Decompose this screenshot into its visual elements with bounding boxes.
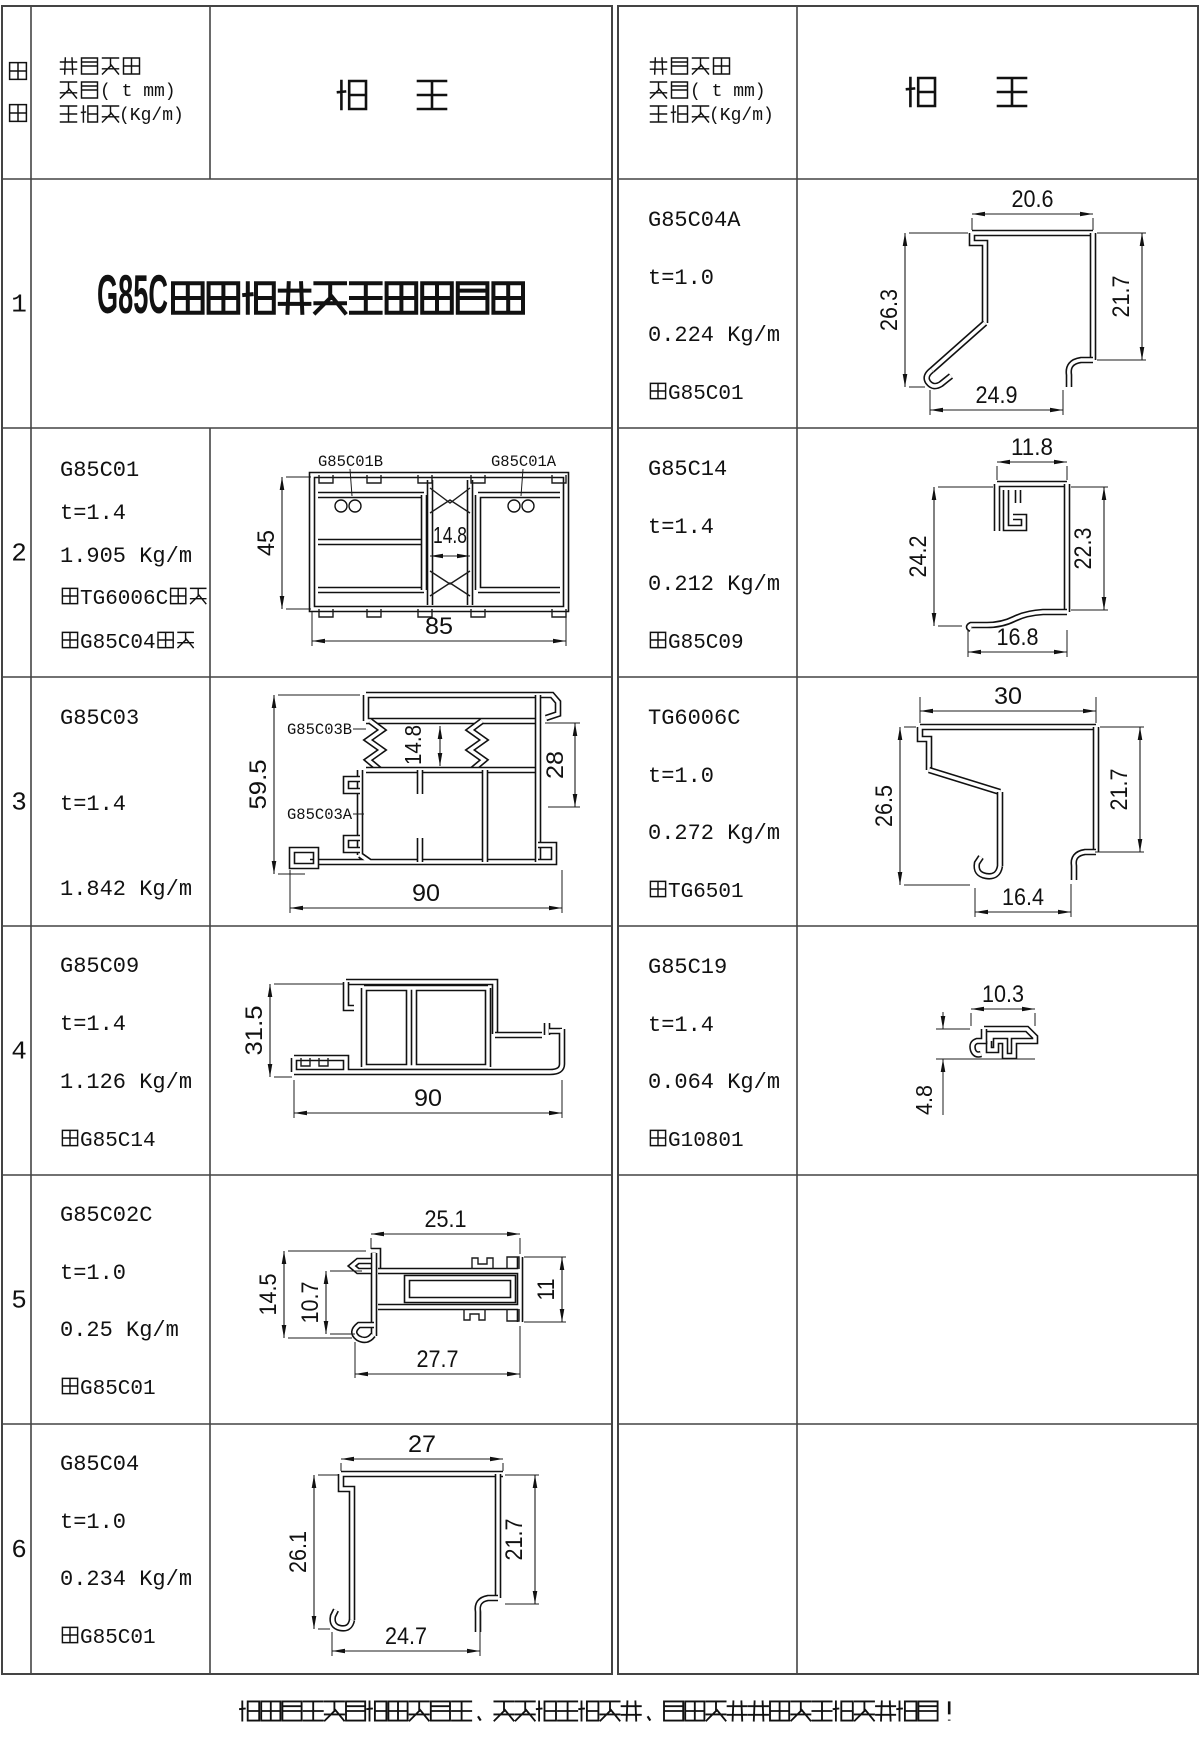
svg-text:1: 1 (11, 290, 27, 320)
svg-text:6: 6 (11, 1535, 27, 1565)
svg-text:0.224 Kg/m: 0.224 Kg/m (648, 323, 780, 348)
svg-text:t=1.0: t=1.0 (648, 266, 714, 291)
svg-text:(Kg/m): (Kg/m) (709, 106, 774, 126)
svg-text:t=1.0: t=1.0 (60, 1510, 126, 1535)
svg-text:G85C09: G85C09 (668, 632, 744, 655)
svg-text:20.6: 20.6 (1012, 186, 1054, 213)
svg-text:14.5: 14.5 (255, 1274, 282, 1316)
svg-text:4: 4 (11, 1037, 27, 1067)
svg-text:G10801: G10801 (668, 1130, 744, 1153)
svg-text:4.8: 4.8 (911, 1085, 937, 1115)
svg-text:10.7: 10.7 (297, 1282, 324, 1324)
svg-text:25.1: 25.1 (425, 1206, 467, 1233)
svg-text:14.8: 14.8 (400, 725, 426, 765)
svg-text:45: 45 (253, 530, 280, 556)
svg-text:0.064 Kg/m: 0.064 Kg/m (648, 1070, 780, 1095)
svg-text:2: 2 (11, 539, 27, 569)
svg-text:G85C02C: G85C02C (60, 1203, 152, 1228)
svg-text:G85C03A: G85C03A (287, 806, 353, 824)
svg-text:16.8: 16.8 (997, 624, 1039, 651)
svg-text:G85C01B: G85C01B (318, 453, 383, 471)
svg-text:( t mm): ( t mm) (100, 82, 176, 102)
svg-text:26.3: 26.3 (876, 289, 903, 331)
svg-text:26.1: 26.1 (285, 1531, 312, 1573)
svg-text:0.25 Kg/m: 0.25 Kg/m (60, 1318, 179, 1343)
svg-text:1.126 Kg/m: 1.126 Kg/m (60, 1070, 192, 1095)
svg-text:t=1.4: t=1.4 (648, 515, 714, 540)
svg-text:10.3: 10.3 (982, 981, 1024, 1008)
svg-text:t=1.4: t=1.4 (60, 1012, 126, 1037)
svg-text:G85C14: G85C14 (80, 1130, 156, 1153)
svg-text:t=1.0: t=1.0 (60, 1261, 126, 1286)
svg-text:3: 3 (11, 788, 27, 818)
svg-text:1.842 Kg/m: 1.842 Kg/m (60, 877, 192, 902)
svg-text:1.905 Kg/m: 1.905 Kg/m (60, 544, 192, 569)
svg-text:G85C19: G85C19 (648, 955, 727, 980)
svg-text:0.272 Kg/m: 0.272 Kg/m (648, 821, 780, 846)
svg-text:21.7: 21.7 (1108, 276, 1135, 318)
svg-text:G85C03B: G85C03B (287, 721, 352, 739)
svg-text:59.5: 59.5 (245, 760, 272, 810)
svg-text:G85C14: G85C14 (648, 457, 727, 482)
svg-text:21.7: 21.7 (1106, 769, 1133, 811)
svg-text:11.8: 11.8 (1011, 434, 1053, 461)
svg-text:5: 5 (11, 1286, 27, 1316)
svg-text:90: 90 (412, 880, 440, 907)
svg-text:t=1.4: t=1.4 (60, 501, 126, 526)
svg-text:G85C: G85C (97, 263, 168, 325)
svg-text:t=1.0: t=1.0 (648, 764, 714, 789)
svg-text:G85C01: G85C01 (668, 383, 744, 406)
svg-text:14.8: 14.8 (433, 522, 467, 548)
svg-text:G85C01A: G85C01A (491, 453, 557, 471)
svg-text:G85C01: G85C01 (80, 1378, 156, 1401)
svg-text:22.3: 22.3 (1070, 528, 1097, 570)
svg-text:16.4: 16.4 (1002, 884, 1044, 911)
svg-text:(Kg/m): (Kg/m) (119, 106, 184, 126)
svg-text:26.5: 26.5 (871, 785, 898, 827)
svg-text:TG6006C: TG6006C (80, 588, 168, 611)
svg-text:t=1.4: t=1.4 (60, 792, 126, 817)
svg-text:G85C01: G85C01 (80, 1627, 156, 1650)
svg-text:27: 27 (408, 1431, 436, 1458)
svg-text:G85C04A: G85C04A (648, 208, 741, 233)
svg-text:0.212 Kg/m: 0.212 Kg/m (648, 572, 780, 597)
svg-text:24.2: 24.2 (905, 536, 932, 578)
svg-text:90: 90 (414, 1085, 442, 1112)
svg-text:24.9: 24.9 (976, 382, 1018, 409)
svg-text:31.5: 31.5 (241, 1006, 268, 1056)
svg-text:21.7: 21.7 (501, 1519, 528, 1561)
svg-text:0.234 Kg/m: 0.234 Kg/m (60, 1567, 192, 1592)
svg-text:G85C04: G85C04 (60, 1452, 139, 1477)
svg-text:( t mm): ( t mm) (690, 82, 766, 102)
svg-text:28: 28 (542, 751, 569, 779)
svg-text:G85C09: G85C09 (60, 954, 139, 979)
svg-text:27.7: 27.7 (417, 1346, 459, 1373)
svg-text:TG6006C: TG6006C (648, 706, 740, 731)
svg-text:11: 11 (533, 1279, 560, 1301)
svg-text:TG6501: TG6501 (668, 881, 744, 904)
svg-text:G85C04: G85C04 (80, 632, 156, 655)
svg-text:30: 30 (994, 683, 1022, 710)
svg-text:85: 85 (425, 613, 453, 640)
svg-text:t=1.4: t=1.4 (648, 1013, 714, 1038)
svg-text:24.7: 24.7 (385, 1623, 427, 1650)
svg-text:G85C01: G85C01 (60, 458, 139, 483)
svg-text:G85C03: G85C03 (60, 706, 139, 731)
